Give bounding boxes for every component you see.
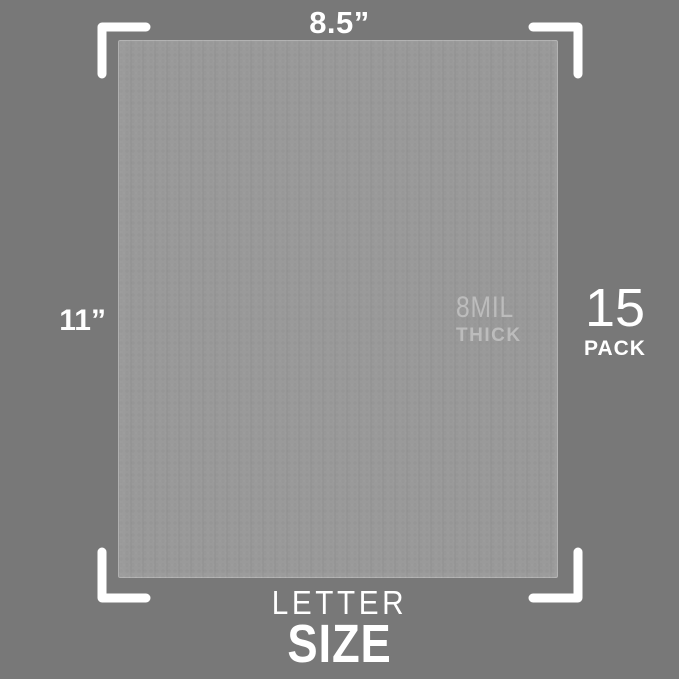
thickness-value: 8MIL [456, 293, 514, 323]
pack-count: 15 [581, 281, 649, 335]
thickness-label: 8MIL THICK [456, 293, 527, 345]
plastic-sheet: 8MIL THICK [118, 40, 558, 578]
size-label: LETTER SIZE [0, 586, 679, 671]
product-dimension-image: 8MIL THICK 8.5” 11” 15 PACK LETTER SIZE [0, 0, 679, 679]
width-dimension-label: 8.5” [0, 5, 679, 41]
pack-word: PACK [581, 338, 649, 359]
size-label-size: SIZE [54, 617, 624, 671]
pack-label: 15 PACK [581, 281, 649, 359]
thickness-word: THICK [456, 326, 527, 345]
height-dimension-label: 11” [36, 304, 106, 338]
